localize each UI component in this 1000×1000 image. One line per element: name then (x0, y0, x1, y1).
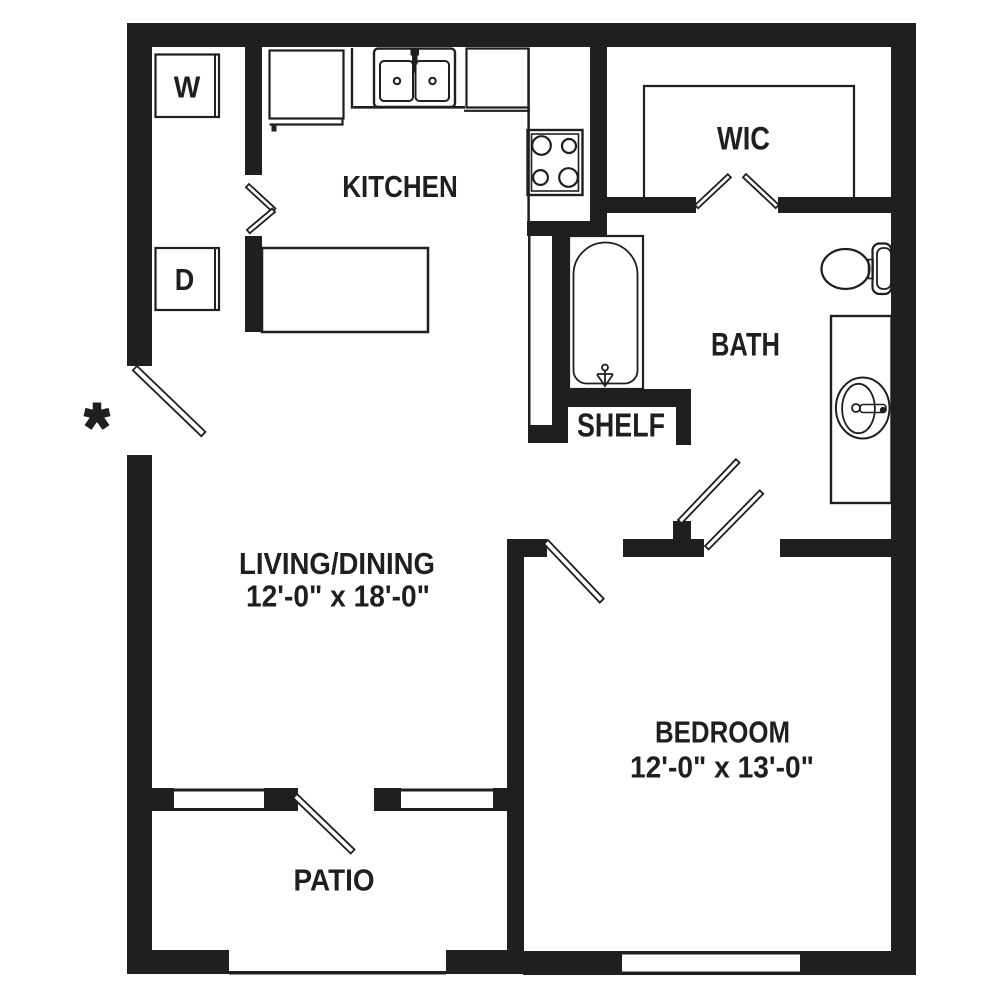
svg-text:KITCHEN: KITCHEN (342, 170, 458, 204)
svg-text:12'-0" x 18'-0": 12'-0" x 18'-0" (246, 580, 430, 614)
svg-text:LIVING/DINING: LIVING/DINING (239, 547, 435, 581)
svg-text:W: W (174, 71, 201, 105)
svg-text:12'-0" x 13'-0": 12'-0" x 13'-0" (630, 751, 814, 785)
svg-text:WIC: WIC (717, 121, 770, 157)
svg-text:BATH: BATH (711, 327, 780, 363)
svg-text:D: D (175, 263, 195, 297)
svg-text:SHELF: SHELF (577, 408, 665, 445)
svg-text:BEDROOM: BEDROOM (655, 716, 790, 750)
svg-text:PATIO: PATIO (294, 864, 375, 898)
